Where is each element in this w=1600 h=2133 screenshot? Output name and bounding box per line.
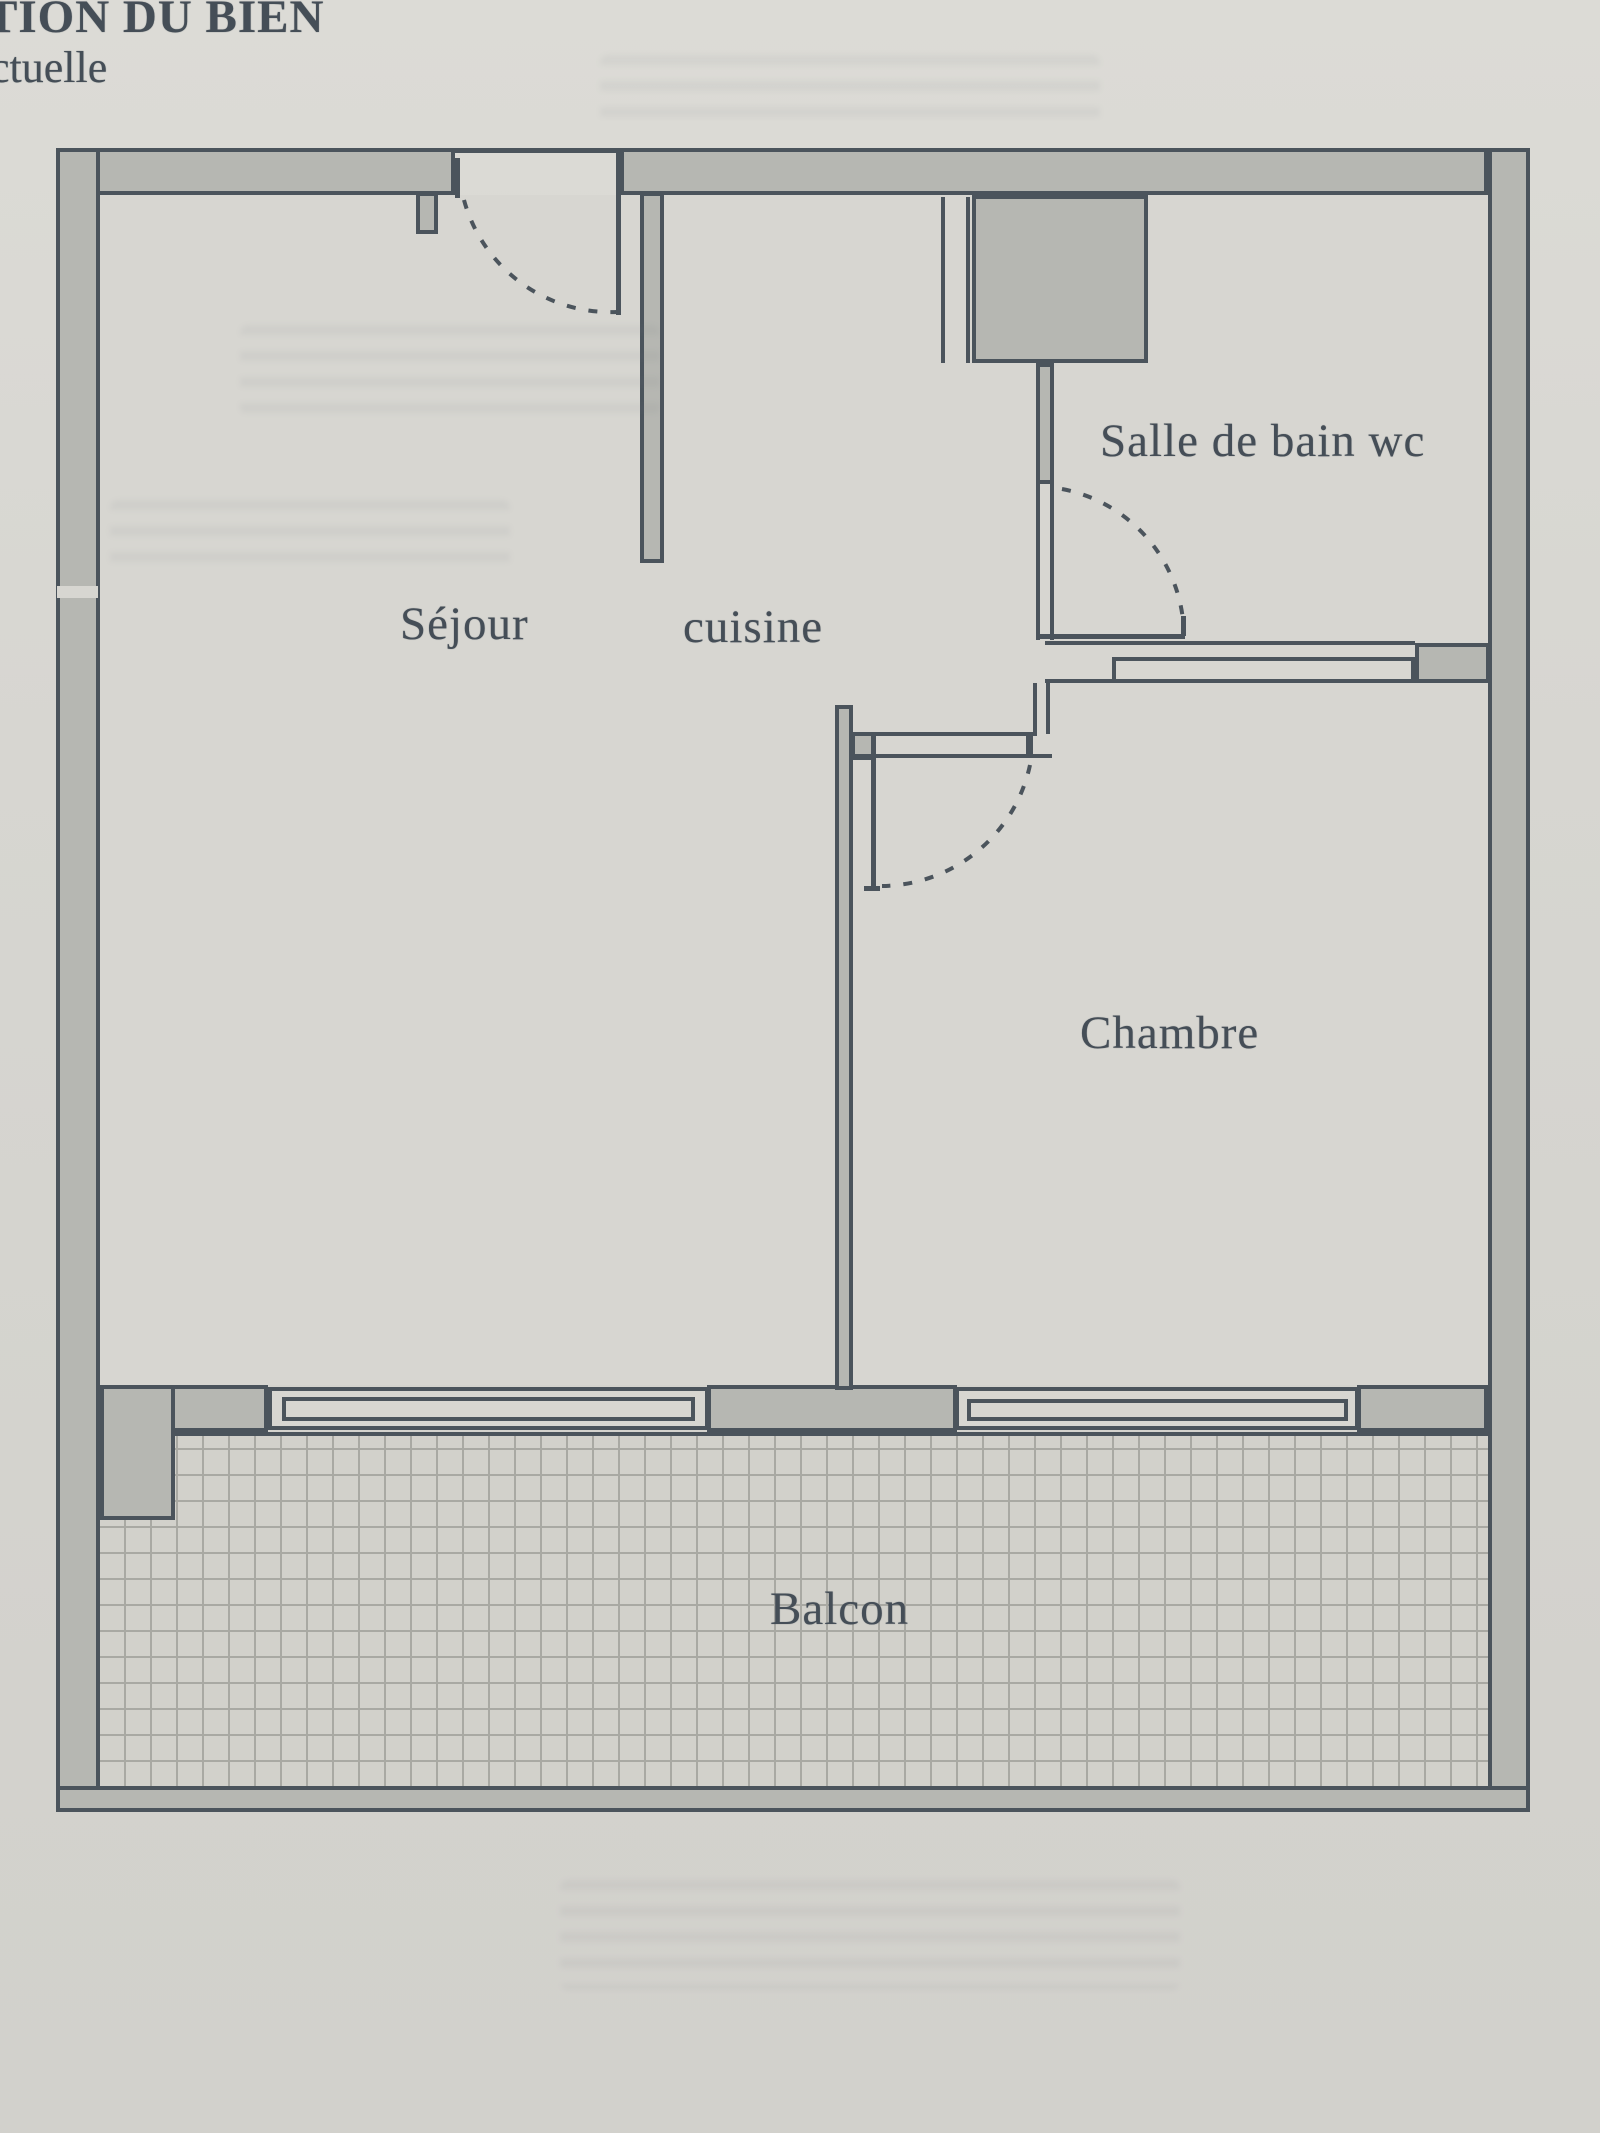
- entry-niche-line-right: [966, 197, 970, 363]
- bathroom-bedroom-connector-line-left: [1033, 683, 1037, 734]
- bleed-through-smudge: [600, 55, 1100, 125]
- bathroom-door-leaf-end-cap: [1181, 616, 1186, 636]
- sejour-chambre-divider-wall: [835, 705, 853, 1390]
- bedroom-door-leaf-open: [871, 736, 876, 890]
- room-label-chambre: Chambre: [1080, 1006, 1259, 1060]
- bathroom-door-jamb-right: [1050, 482, 1054, 640]
- bleed-through-smudge: [110, 500, 510, 570]
- entry-door-hinge-jamb: [455, 158, 460, 198]
- room-label-sejour: Séjour: [400, 597, 529, 651]
- balcony-outer-wall: [56, 1786, 1530, 1812]
- sejour-window: [282, 1397, 695, 1421]
- room-label-cuisine: cuisine: [683, 600, 823, 654]
- room-label-salle-de-bain: Salle de bain wc: [1100, 414, 1425, 468]
- balcony-left-pier: [100, 1385, 175, 1520]
- bleed-through-smudge: [240, 325, 660, 415]
- left-wall-joint-gap: [57, 586, 98, 598]
- bleed-through-smudge: [560, 1880, 1180, 1990]
- utility-duct-block: [972, 195, 1148, 363]
- entry-wall-stub: [416, 192, 438, 234]
- facade-wall-center-pier: [707, 1385, 957, 1432]
- left-exterior-wall: [56, 148, 100, 1812]
- facade-wall-right-segment: [1357, 1385, 1488, 1432]
- bedroom-door-hinge-mark: [1026, 736, 1033, 756]
- bathroom-left-wall: [1036, 363, 1054, 484]
- scanned-floorplan-page: TION DU BIEN ctuelle: [0, 0, 1600, 2133]
- right-exterior-wall: [1488, 148, 1530, 1812]
- room-label-balcon: Balcon: [770, 1582, 909, 1636]
- chambre-window: [967, 1399, 1348, 1421]
- bedroom-door-wall-line-bottom: [851, 754, 1052, 758]
- bathroom-door-leaf-open: [1036, 634, 1185, 639]
- bathroom-transom-window: [1112, 657, 1415, 683]
- bathroom-bedroom-connector-line-right: [1046, 683, 1050, 734]
- entry-niche-line-left: [941, 197, 945, 363]
- bedroom-door-wall-line-top: [851, 732, 1037, 736]
- bathroom-bottom-wall-line-upper: [1045, 641, 1415, 645]
- top-wall-right-segment: [620, 148, 1488, 195]
- entry-door-head-line: [455, 148, 620, 153]
- top-wall-left-segment: [56, 148, 455, 195]
- entry-door-leaf: [616, 150, 621, 315]
- bathroom-door-jamb-left: [1036, 482, 1040, 640]
- bedroom-door-leaf-end-cap: [864, 886, 880, 891]
- page-title-fragment: TION DU BIEN: [0, 0, 324, 44]
- page-subtitle-fragment: ctuelle: [0, 42, 107, 93]
- bathroom-bottom-wall-chunk: [1415, 643, 1490, 683]
